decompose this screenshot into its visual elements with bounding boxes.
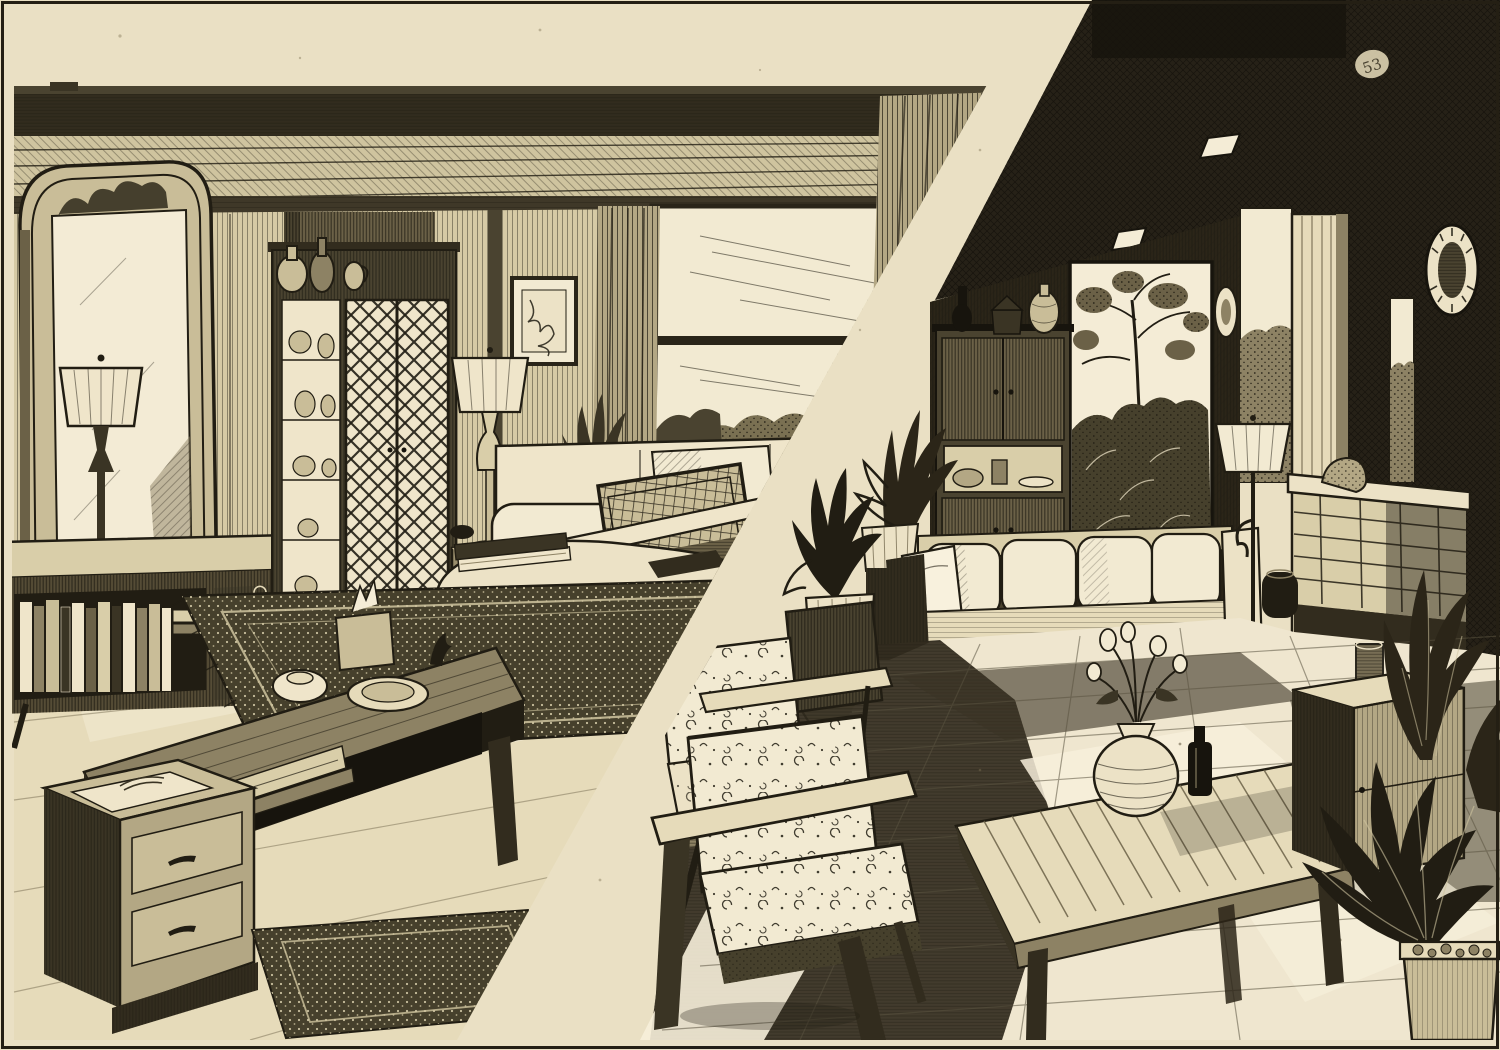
etched-interior-illustration: 53 <box>0 0 1500 1050</box>
framed-picture <box>512 278 576 364</box>
ceramic-jar <box>1262 570 1298 618</box>
ceiling-beam <box>14 82 1024 136</box>
wall-clock <box>1426 225 1478 315</box>
wall-plate <box>1215 287 1237 337</box>
illustration-canvas: 53 <box>0 0 1500 1050</box>
